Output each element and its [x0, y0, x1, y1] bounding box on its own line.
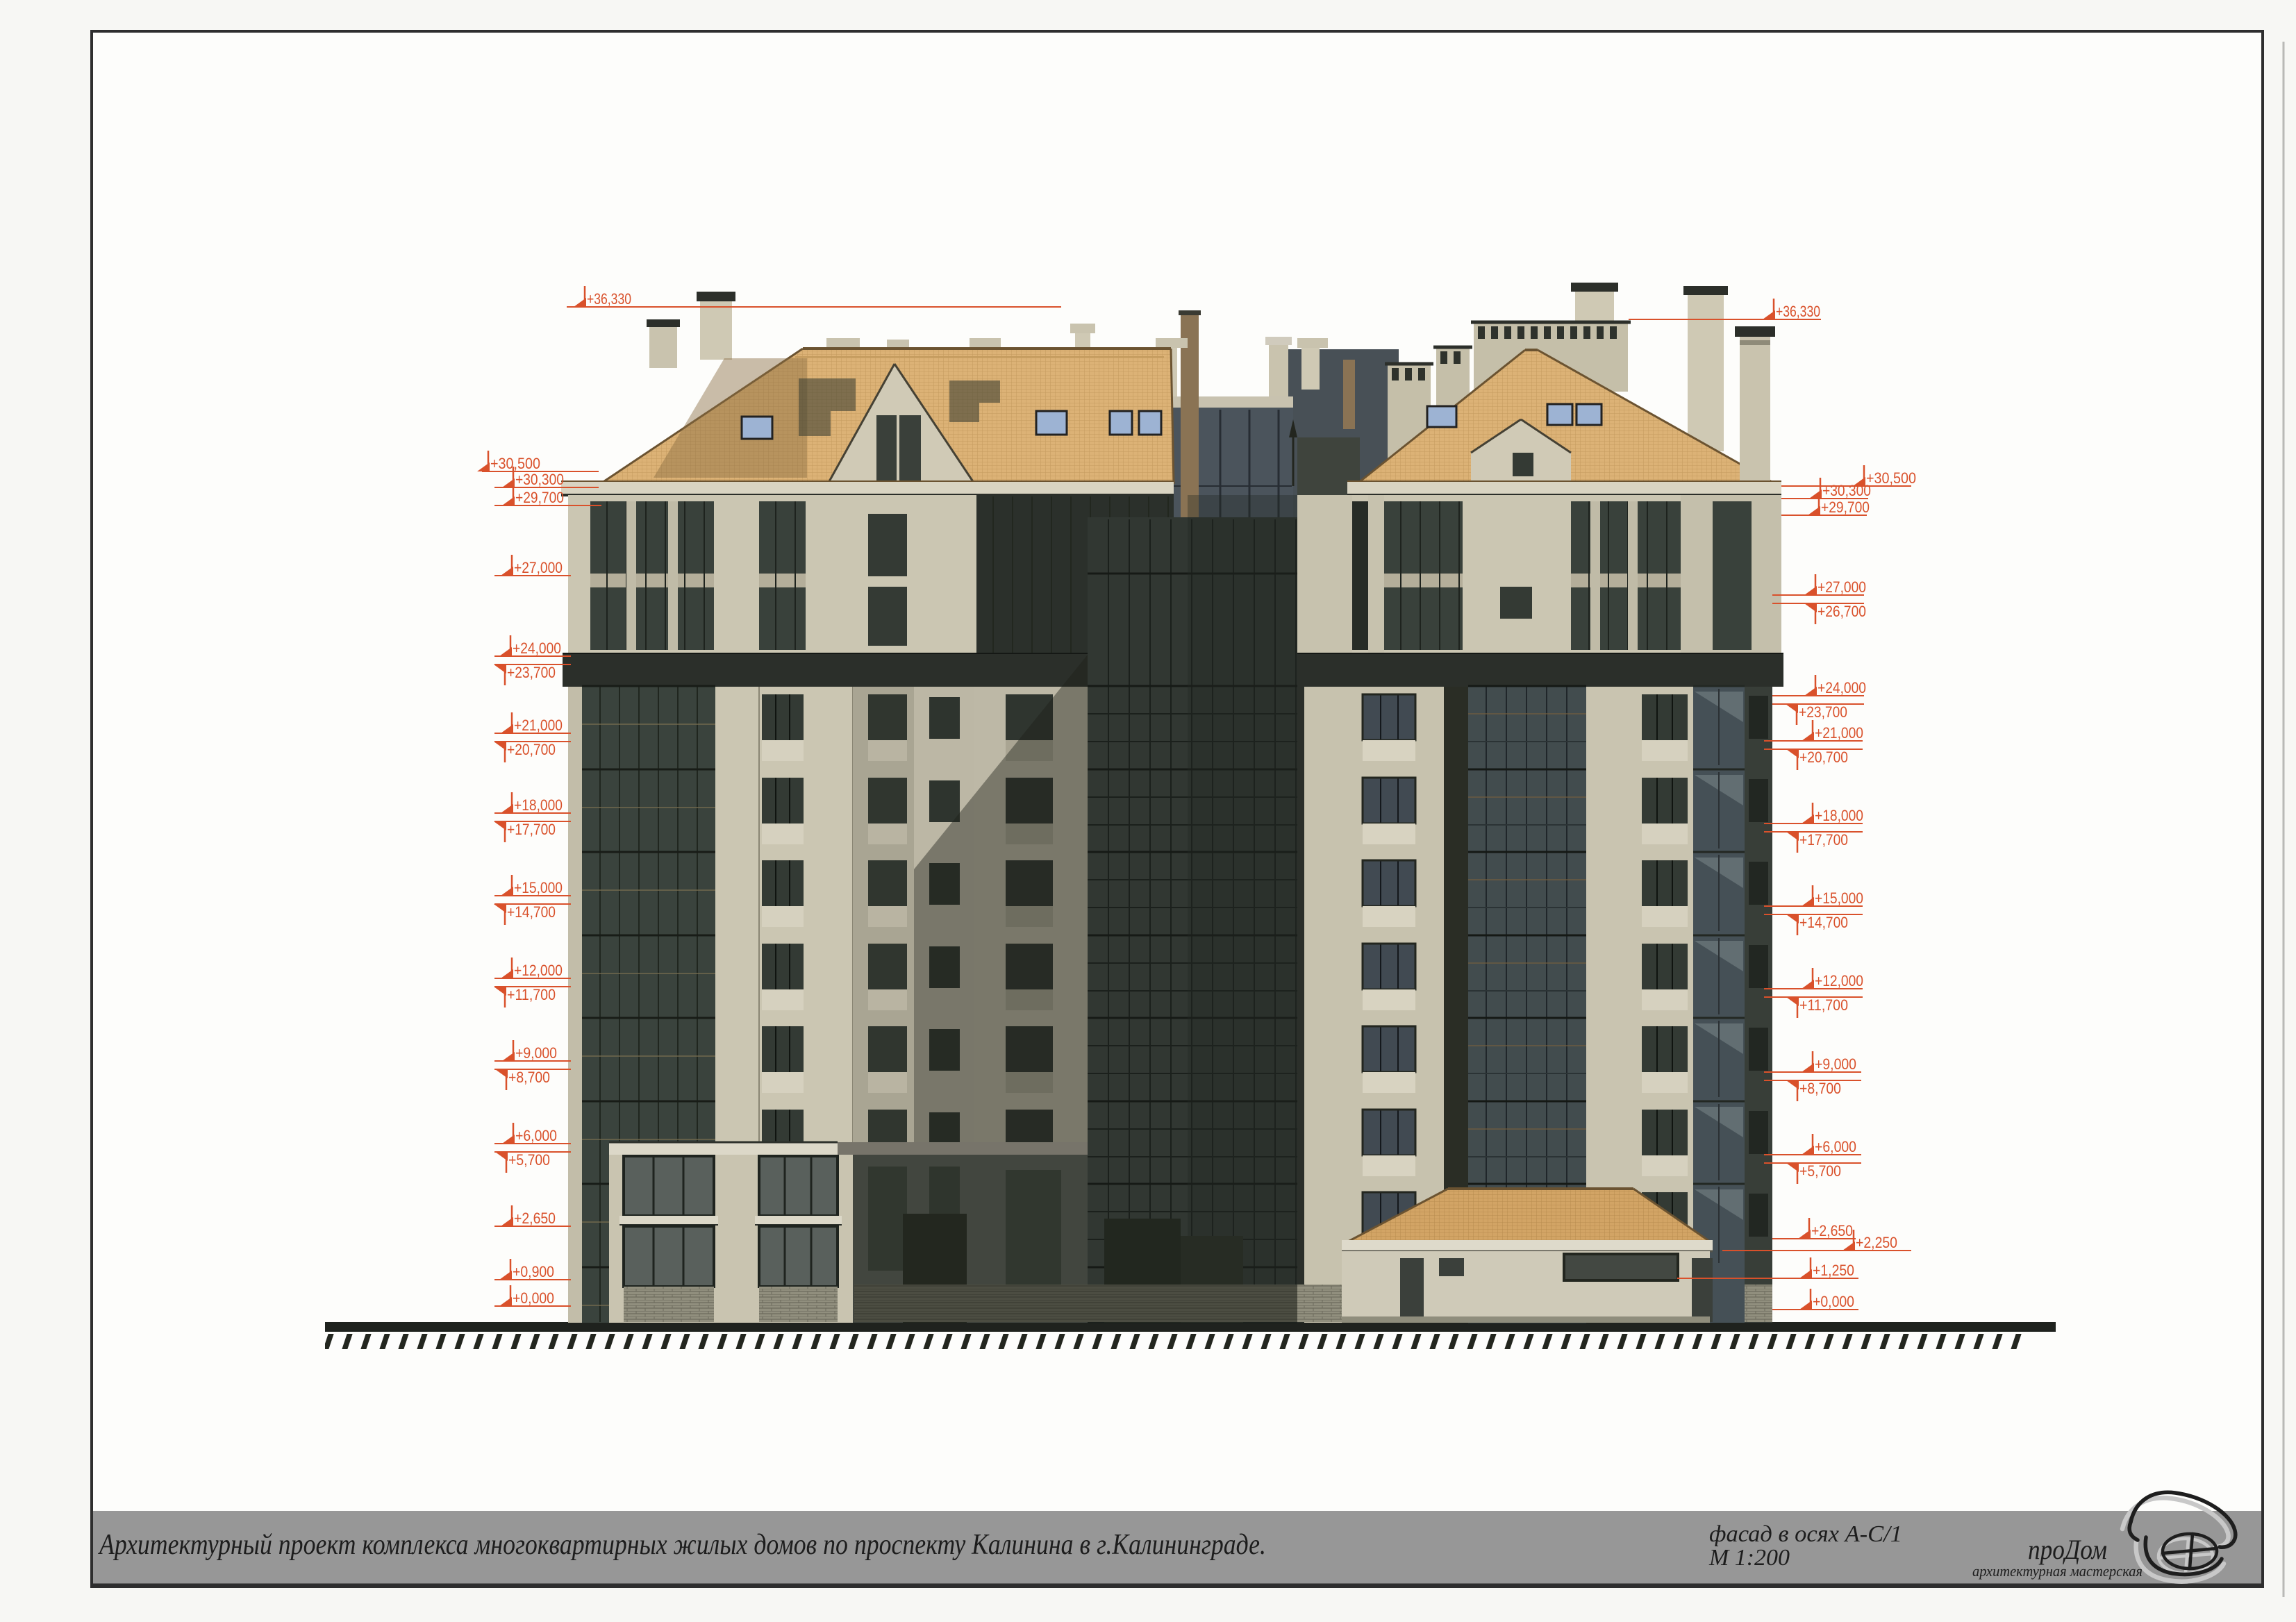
svg-text:+20,700: +20,700	[507, 741, 556, 758]
svg-text:+30,500: +30,500	[1866, 469, 1916, 487]
svg-text:+15,000: +15,000	[514, 879, 563, 896]
svg-text:+20,700: +20,700	[1799, 749, 1848, 766]
svg-text:+17,700: +17,700	[507, 821, 556, 838]
svg-text:М 1:200: М 1:200	[1708, 1545, 1790, 1571]
svg-text:+9,000: +9,000	[1815, 1055, 1856, 1073]
svg-text:+27,000: +27,000	[1817, 578, 1866, 596]
svg-text:+17,700: +17,700	[1799, 831, 1848, 848]
svg-text:+18,000: +18,000	[514, 796, 563, 814]
svg-text:+9,000: +9,000	[515, 1044, 557, 1062]
svg-text:+12,000: +12,000	[514, 962, 563, 979]
svg-text:+6,000: +6,000	[1815, 1138, 1856, 1155]
svg-text:+2,250: +2,250	[1856, 1234, 1897, 1251]
svg-text:+0,000: +0,000	[1813, 1293, 1854, 1310]
svg-text:+30,300: +30,300	[515, 471, 564, 488]
svg-text:+29,700: +29,700	[1821, 499, 1870, 516]
svg-text:+29,700: +29,700	[515, 489, 564, 506]
svg-text:+14,700: +14,700	[1799, 914, 1848, 931]
svg-text:+8,700: +8,700	[1799, 1080, 1841, 1097]
svg-text:фасад в осях А-С/1: фасад в осях А-С/1	[1709, 1521, 1902, 1547]
svg-text:+36,330: +36,330	[587, 290, 631, 308]
svg-text:+11,700: +11,700	[1799, 996, 1848, 1014]
svg-text:+2,650: +2,650	[1811, 1222, 1853, 1239]
svg-text:+15,000: +15,000	[1815, 889, 1863, 907]
svg-text:проДом: проДом	[2028, 1534, 2107, 1565]
svg-text:+21,000: +21,000	[514, 717, 563, 734]
svg-text:+1,250: +1,250	[1813, 1262, 1854, 1279]
svg-text:+23,700: +23,700	[1799, 703, 1847, 721]
svg-text:+8,700: +8,700	[508, 1069, 550, 1086]
svg-text:+5,700: +5,700	[1799, 1162, 1841, 1180]
svg-text:+0,000: +0,000	[513, 1289, 554, 1307]
svg-text:+5,700: +5,700	[508, 1151, 550, 1169]
svg-text:+12,000: +12,000	[1815, 972, 1863, 989]
svg-text:+0,900: +0,900	[513, 1263, 554, 1280]
svg-text:+27,000: +27,000	[514, 559, 563, 576]
svg-text:+36,330: +36,330	[1776, 303, 1820, 320]
svg-text:+23,700: +23,700	[507, 664, 556, 681]
svg-text:+26,700: +26,700	[1817, 603, 1866, 620]
svg-text:+24,000: +24,000	[1817, 679, 1866, 696]
svg-text:+18,000: +18,000	[1815, 807, 1863, 824]
svg-text:+2,650: +2,650	[514, 1210, 556, 1227]
svg-text:+30,500: +30,500	[490, 455, 540, 472]
svg-text:+11,700: +11,700	[507, 986, 556, 1003]
svg-text:+21,000: +21,000	[1815, 724, 1863, 742]
svg-text:+30,300: +30,300	[1822, 482, 1871, 499]
svg-text:Архитектурный проект комплекса: Архитектурный проект комплекса многоквар…	[97, 1529, 1266, 1561]
svg-text:архитектурная мастерская: архитектурная мастерская	[1972, 1562, 2143, 1580]
svg-text:+6,000: +6,000	[515, 1127, 557, 1144]
svg-text:+14,700: +14,700	[507, 903, 556, 921]
svg-text:+24,000: +24,000	[513, 639, 561, 657]
